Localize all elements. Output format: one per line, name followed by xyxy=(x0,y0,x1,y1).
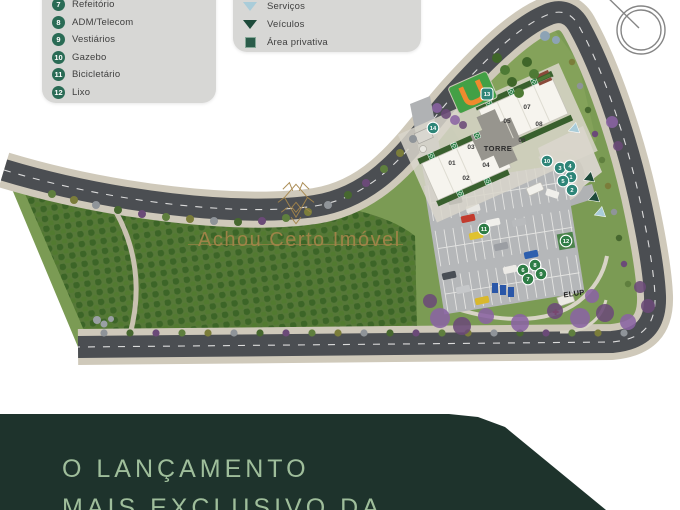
legend-label: Área privativa xyxy=(267,37,328,48)
legend-number-badge: 11 xyxy=(52,68,65,81)
svg-text:12: 12 xyxy=(563,239,569,245)
legend-item-veiculos: Veículos xyxy=(242,15,421,33)
legend-label: Bicicletário xyxy=(72,69,120,80)
unit-label-07: 07 xyxy=(523,104,531,111)
legend-item-bicicletario: 11 Bicicletário xyxy=(52,66,216,84)
legend-numbered-card: 7 Refeitório 8 ADM/Telecom 9 Vestiários … xyxy=(42,0,216,103)
footer-band: O LANÇAMENTO MAIS EXCLUSIVO DA xyxy=(0,414,680,510)
footer-line-1: O LANÇAMENTO xyxy=(62,450,680,489)
map-marker-2: 2 xyxy=(566,184,578,196)
legend-symbols-card: Serviços Veículos Área privativa xyxy=(233,0,421,52)
torre-label: TORRE xyxy=(484,144,513,153)
legend-label: Lixo xyxy=(72,87,90,98)
unit-label-08: 08 xyxy=(535,121,543,128)
unit-label-02: 02 xyxy=(462,175,470,182)
map-marker-9: 9 xyxy=(535,268,547,280)
map-marker-4: 4 xyxy=(564,160,576,172)
legend-number-badge: 7 xyxy=(52,0,65,11)
legend-item-lixo: 12 Lixo xyxy=(52,84,216,102)
legend-number-badge: 9 xyxy=(52,33,65,46)
triangle-down-dark-icon xyxy=(242,20,258,29)
unit-label-01: 01 xyxy=(448,160,456,167)
legend-label: Veículos xyxy=(267,19,305,30)
legend-item-gazebo: 10 Gazebo xyxy=(52,49,216,67)
map-marker-7: 7 xyxy=(522,273,534,285)
compass-icon xyxy=(600,0,665,54)
svg-text:13: 13 xyxy=(484,92,491,98)
legend-item-area-privativa: Área privativa xyxy=(242,33,421,51)
map-marker-10: 10 xyxy=(541,155,553,167)
svg-text:2: 2 xyxy=(570,188,573,194)
masterplan-page: TORRE ELUP 01020304050607081234567891011… xyxy=(0,0,680,510)
legend-label: ADM/Telecom xyxy=(72,17,133,28)
unit-label-04: 04 xyxy=(482,162,490,169)
map-marker-5: 5 xyxy=(557,175,569,187)
legend-label: Serviços xyxy=(267,1,305,12)
svg-text:14: 14 xyxy=(430,126,437,132)
legend-label: Gazebo xyxy=(72,52,106,63)
legend-item-adm-telecom: 8 ADM/Telecom xyxy=(52,14,216,32)
legend-number-badge: 12 xyxy=(52,86,65,99)
unit-label-05: 05 xyxy=(503,118,511,125)
map-marker-14: 14 xyxy=(427,122,439,134)
map-marker-13: 13 xyxy=(481,88,493,100)
map-marker-11: 11 xyxy=(478,223,490,235)
legend-label: Refeitório xyxy=(72,0,115,10)
legend-number-badge: 10 xyxy=(52,51,65,64)
unit-label-06: 06 xyxy=(518,137,526,144)
map-marker-12: 12 xyxy=(560,235,572,247)
legend-number-badge: 8 xyxy=(52,16,65,29)
svg-text:10: 10 xyxy=(544,159,550,165)
legend-item-vestiarios: 9 Vestiários xyxy=(52,31,216,49)
legend-item-servicos: Serviços xyxy=(242,0,421,15)
footer-line-2: MAIS EXCLUSIVO DA xyxy=(62,489,680,510)
svg-text:11: 11 xyxy=(481,227,488,233)
triangle-down-light-icon xyxy=(242,2,258,11)
unit-label-03: 03 xyxy=(467,144,475,151)
legend-label: Vestiários xyxy=(72,34,115,45)
svg-text:7: 7 xyxy=(526,277,529,283)
square-dark-icon xyxy=(242,37,258,48)
legend-item-refeitorio: 7 Refeitório xyxy=(52,0,216,14)
